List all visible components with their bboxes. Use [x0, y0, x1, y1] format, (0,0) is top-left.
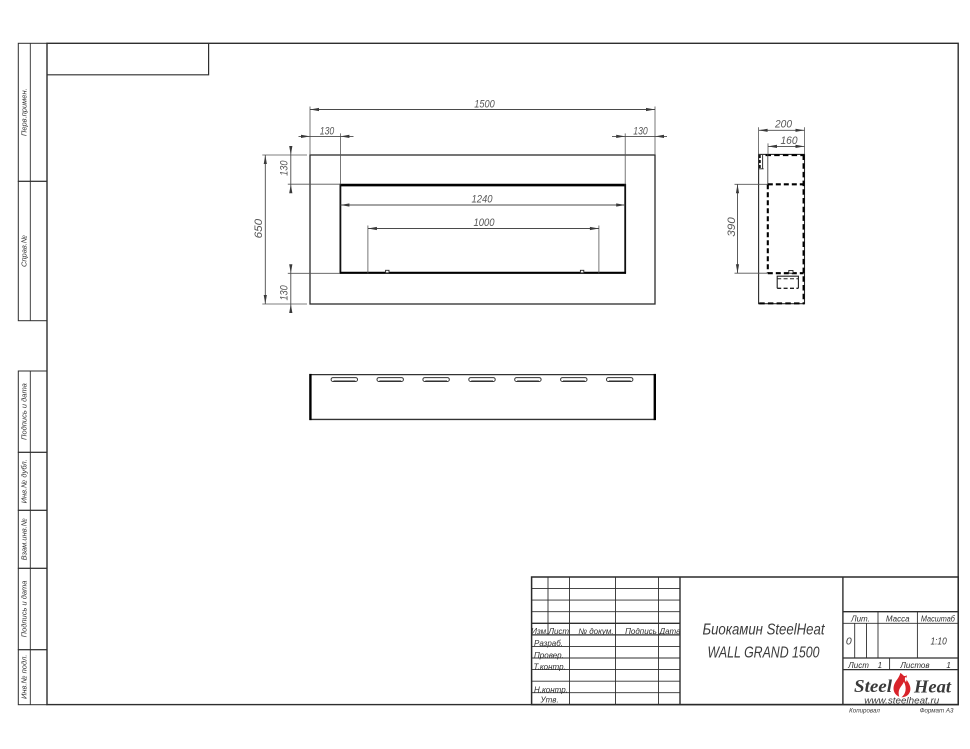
svg-text:Т.контр.: Т.контр.	[534, 662, 566, 671]
svg-text:№ докум.: № докум.	[578, 627, 613, 636]
svg-text:Провер.: Провер.	[534, 651, 564, 660]
svg-text:Лист: Лист	[847, 661, 869, 670]
svg-text:Изм.: Изм.	[531, 627, 548, 636]
svg-text:Дата: Дата	[658, 627, 681, 636]
svg-text:Лист: Лист	[547, 627, 569, 636]
svg-text:Разраб.: Разраб.	[534, 639, 563, 648]
svg-text:Справ.№: Справ.№	[20, 235, 29, 267]
svg-text:Steel: Steel	[854, 676, 892, 696]
svg-text:Инв.№ дубл.: Инв.№ дубл.	[20, 459, 29, 503]
svg-text:WALL GRAND 1500: WALL GRAND 1500	[708, 644, 820, 661]
svg-text:Масса: Масса	[886, 615, 910, 624]
svg-text:Масштаб: Масштаб	[921, 615, 955, 624]
svg-text:Инв.№ подл.: Инв.№ подл.	[20, 655, 29, 699]
svg-text:Heat: Heat	[913, 676, 952, 696]
svg-text:1240: 1240	[472, 194, 494, 206]
svg-text:390: 390	[726, 216, 738, 236]
svg-text:Взам.инв.№: Взам.инв.№	[20, 518, 29, 560]
svg-text:1:10: 1:10	[930, 636, 946, 648]
svg-text:1: 1	[878, 661, 882, 670]
svg-text:130: 130	[279, 160, 291, 176]
svg-text:130: 130	[279, 285, 291, 301]
svg-text:Формат А3: Формат А3	[920, 708, 954, 715]
svg-text:1500: 1500	[474, 99, 495, 111]
svg-text:Биокамин SteelHeat: Биокамин SteelHeat	[703, 622, 825, 639]
svg-text:www.steelheat.ru: www.steelheat.ru	[864, 695, 939, 705]
svg-text:Н.контр.: Н.контр.	[534, 685, 568, 694]
svg-text:Подпись: Подпись	[625, 627, 657, 636]
svg-text:Копировал: Копировал	[849, 708, 880, 715]
svg-text:130: 130	[320, 125, 335, 137]
svg-text:1: 1	[946, 661, 950, 670]
svg-text:160: 160	[781, 135, 799, 147]
svg-text:Лит.: Лит.	[850, 615, 870, 624]
svg-text:0: 0	[846, 636, 852, 648]
svg-text:Листов: Листов	[899, 661, 929, 670]
svg-text:Перв.примен.: Перв.примен.	[20, 88, 29, 136]
svg-text:200: 200	[774, 119, 793, 131]
svg-text:1000: 1000	[474, 217, 496, 229]
svg-text:130: 130	[633, 125, 648, 137]
svg-text:Подпись и дата: Подпись и дата	[20, 581, 29, 638]
svg-text:650: 650	[253, 218, 265, 238]
svg-text:Утв.: Утв.	[540, 695, 559, 704]
svg-text:Подпись и дата: Подпись и дата	[20, 383, 29, 440]
